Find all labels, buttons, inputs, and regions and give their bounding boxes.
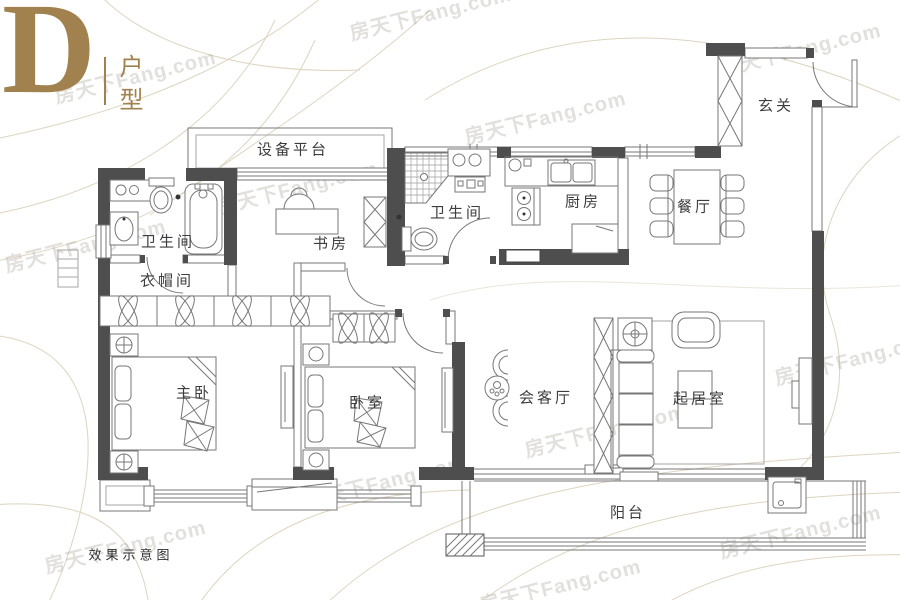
label-second-bedroom: 卧室 <box>349 392 385 413</box>
label-dining-room: 餐厅 <box>677 196 713 217</box>
toilet-icon <box>402 227 437 251</box>
label-family-room: 会客厅 <box>519 387 573 408</box>
bathroom-second-fixtures <box>397 149 491 251</box>
label-balcony: 阳台 <box>610 502 646 523</box>
kitchen-sink-icon <box>548 159 595 185</box>
sofa-icon <box>611 350 654 468</box>
bedroom-wardrobe <box>333 310 395 345</box>
fridge-icon <box>572 224 618 253</box>
label-living-room: 起居室 <box>673 388 727 409</box>
dresser-icon <box>281 366 293 428</box>
exterior-ledge <box>58 250 78 287</box>
label-cloakroom: 衣帽间 <box>140 270 194 291</box>
label-bathroom-main: 卫生间 <box>141 231 195 252</box>
sink-icon <box>110 212 138 245</box>
floorplan-canvas: 房天下Fang.com 房天下Fang.com 房天下Fang.com 房天下F… <box>0 0 900 600</box>
lamp-table-icon <box>618 318 652 350</box>
kitchen-flue <box>506 250 540 262</box>
duct-shaft <box>364 197 386 247</box>
master-bed <box>110 334 293 473</box>
vanity-icon <box>448 149 490 192</box>
label-master-bedroom: 主卧 <box>176 382 212 403</box>
cloakroom-wardrobe <box>100 293 330 328</box>
tv-stand-icon <box>792 358 812 424</box>
washer <box>768 477 806 513</box>
floorplan-drawing <box>0 0 900 600</box>
desk-icon <box>276 209 338 234</box>
toilet-icon <box>149 178 174 213</box>
label-entry: 玄关 <box>758 95 794 116</box>
shower-icon <box>405 153 448 203</box>
kitchen-fixtures <box>505 157 618 253</box>
stove-icon <box>512 188 540 225</box>
label-kitchen: 厨房 <box>565 191 601 212</box>
footnote-text: 效果示意图 <box>88 545 173 564</box>
label-study: 书房 <box>313 233 349 254</box>
armchair-icon <box>672 312 720 348</box>
left-wall-window <box>96 225 111 258</box>
entry-column <box>718 56 742 146</box>
label-equipment-platform: 设备平台 <box>257 139 329 160</box>
tv-cabinet-icon <box>442 368 453 432</box>
label-bathroom-second: 卫生间 <box>430 202 484 223</box>
study-furniture <box>276 188 338 234</box>
shelf-column <box>594 318 613 473</box>
family-room-chairs <box>485 350 509 426</box>
